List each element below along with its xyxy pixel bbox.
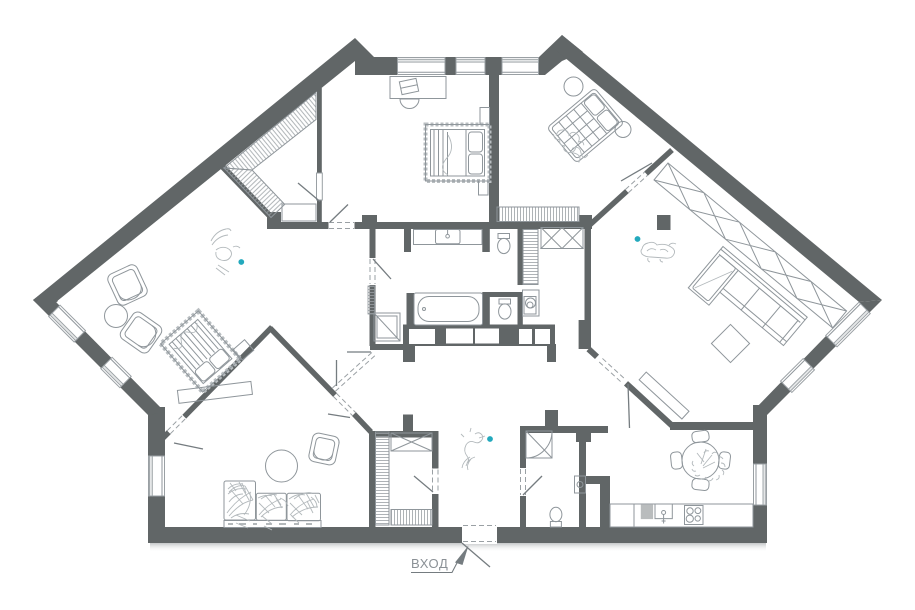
svg-text:ВХОД: ВХОД [411,556,448,571]
